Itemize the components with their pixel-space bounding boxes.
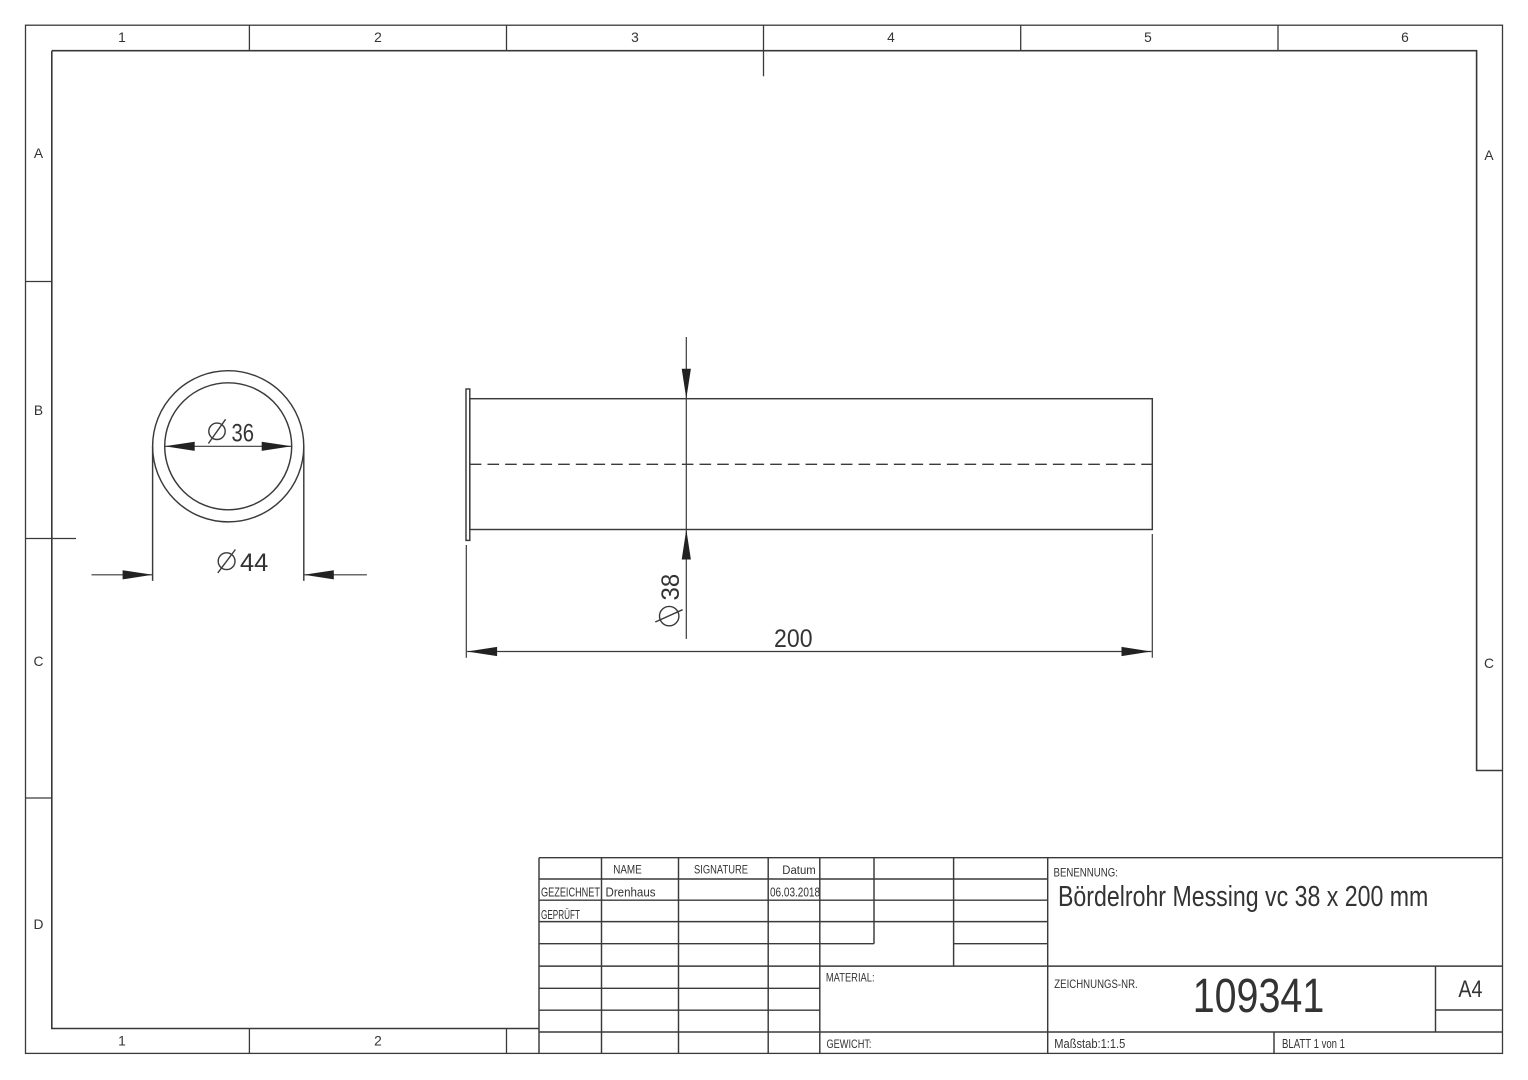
svg-text:GEWICHT:: GEWICHT: xyxy=(827,1037,872,1051)
svg-text:1: 1 xyxy=(118,30,126,45)
svg-text:BENENNUNG:: BENENNUNG: xyxy=(1054,866,1118,880)
svg-text:Datum: Datum xyxy=(782,865,815,877)
svg-text:A: A xyxy=(1484,148,1494,163)
svg-text:GEZEICHNET: GEZEICHNET xyxy=(541,885,600,899)
svg-text:44: 44 xyxy=(240,549,268,577)
svg-text:06.03.2018: 06.03.2018 xyxy=(770,886,820,900)
svg-text:4: 4 xyxy=(887,30,895,45)
svg-text:2: 2 xyxy=(374,1034,382,1049)
svg-text:BLATT 1 von 1: BLATT 1 von 1 xyxy=(1282,1037,1345,1051)
svg-text:1: 1 xyxy=(118,1034,126,1049)
svg-text:D: D xyxy=(34,917,44,932)
svg-text:GEPRÜFT: GEPRÜFT xyxy=(541,908,580,922)
svg-text:109341: 109341 xyxy=(1193,969,1325,1023)
svg-text:SIGNATURE: SIGNATURE xyxy=(694,865,748,877)
svg-text:B: B xyxy=(34,403,43,418)
svg-text:200: 200 xyxy=(774,625,813,653)
svg-text:A4: A4 xyxy=(1458,976,1482,1003)
svg-text:Maßstab:1:1.5: Maßstab:1:1.5 xyxy=(1054,1036,1125,1051)
svg-text:6: 6 xyxy=(1401,30,1409,45)
svg-text:5: 5 xyxy=(1144,30,1152,45)
svg-text:2: 2 xyxy=(374,30,382,45)
svg-text:3: 3 xyxy=(631,30,639,45)
svg-text:MATERIAL:: MATERIAL: xyxy=(826,971,875,985)
svg-text:A: A xyxy=(34,146,44,161)
svg-text:C: C xyxy=(34,654,44,669)
svg-text:Drenhaus: Drenhaus xyxy=(606,886,656,900)
svg-text:ZEICHNUNGS-NR.: ZEICHNUNGS-NR. xyxy=(1054,977,1137,991)
svg-text:NAME: NAME xyxy=(613,865,642,877)
svg-text:C: C xyxy=(1484,656,1494,671)
svg-text:38: 38 xyxy=(657,574,685,601)
svg-text:Bördelrohr Messing vc 38 x 20: Bördelrohr Messing vc 38 x 200 mm xyxy=(1058,881,1428,913)
svg-text:36: 36 xyxy=(232,419,255,447)
